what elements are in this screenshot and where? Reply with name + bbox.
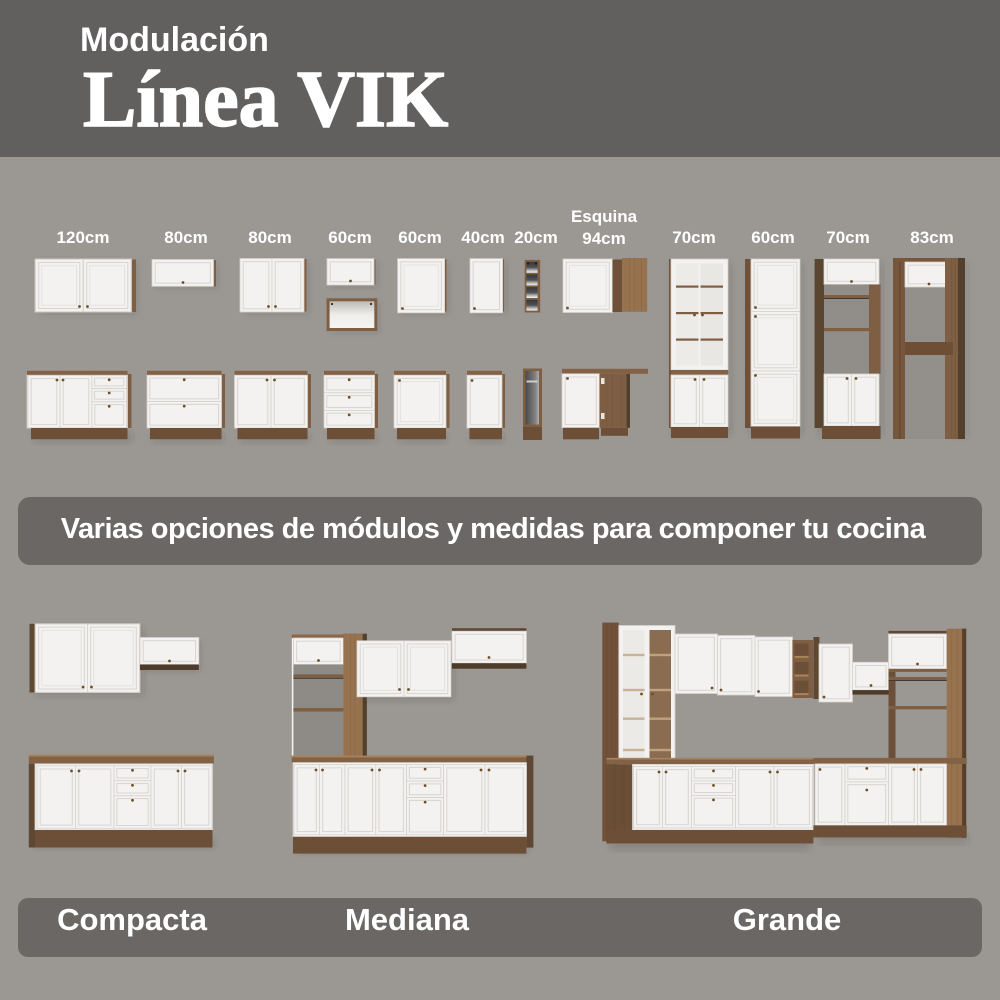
svg-text:60cm: 60cm: [398, 228, 441, 247]
svg-text:20cm: 20cm: [514, 228, 557, 247]
svg-text:83cm: 83cm: [910, 228, 953, 247]
svg-text:70cm: 70cm: [672, 228, 715, 247]
svg-text:60cm: 60cm: [328, 228, 371, 247]
svg-text:94cm: 94cm: [582, 229, 625, 248]
svg-text:Esquina: Esquina: [571, 207, 638, 226]
svg-text:80cm: 80cm: [164, 228, 207, 247]
svg-text:40cm: 40cm: [461, 228, 504, 247]
svg-text:60cm: 60cm: [751, 228, 794, 247]
svg-text:120cm: 120cm: [57, 228, 110, 247]
svg-text:70cm: 70cm: [826, 228, 869, 247]
svg-text:80cm: 80cm: [248, 228, 291, 247]
